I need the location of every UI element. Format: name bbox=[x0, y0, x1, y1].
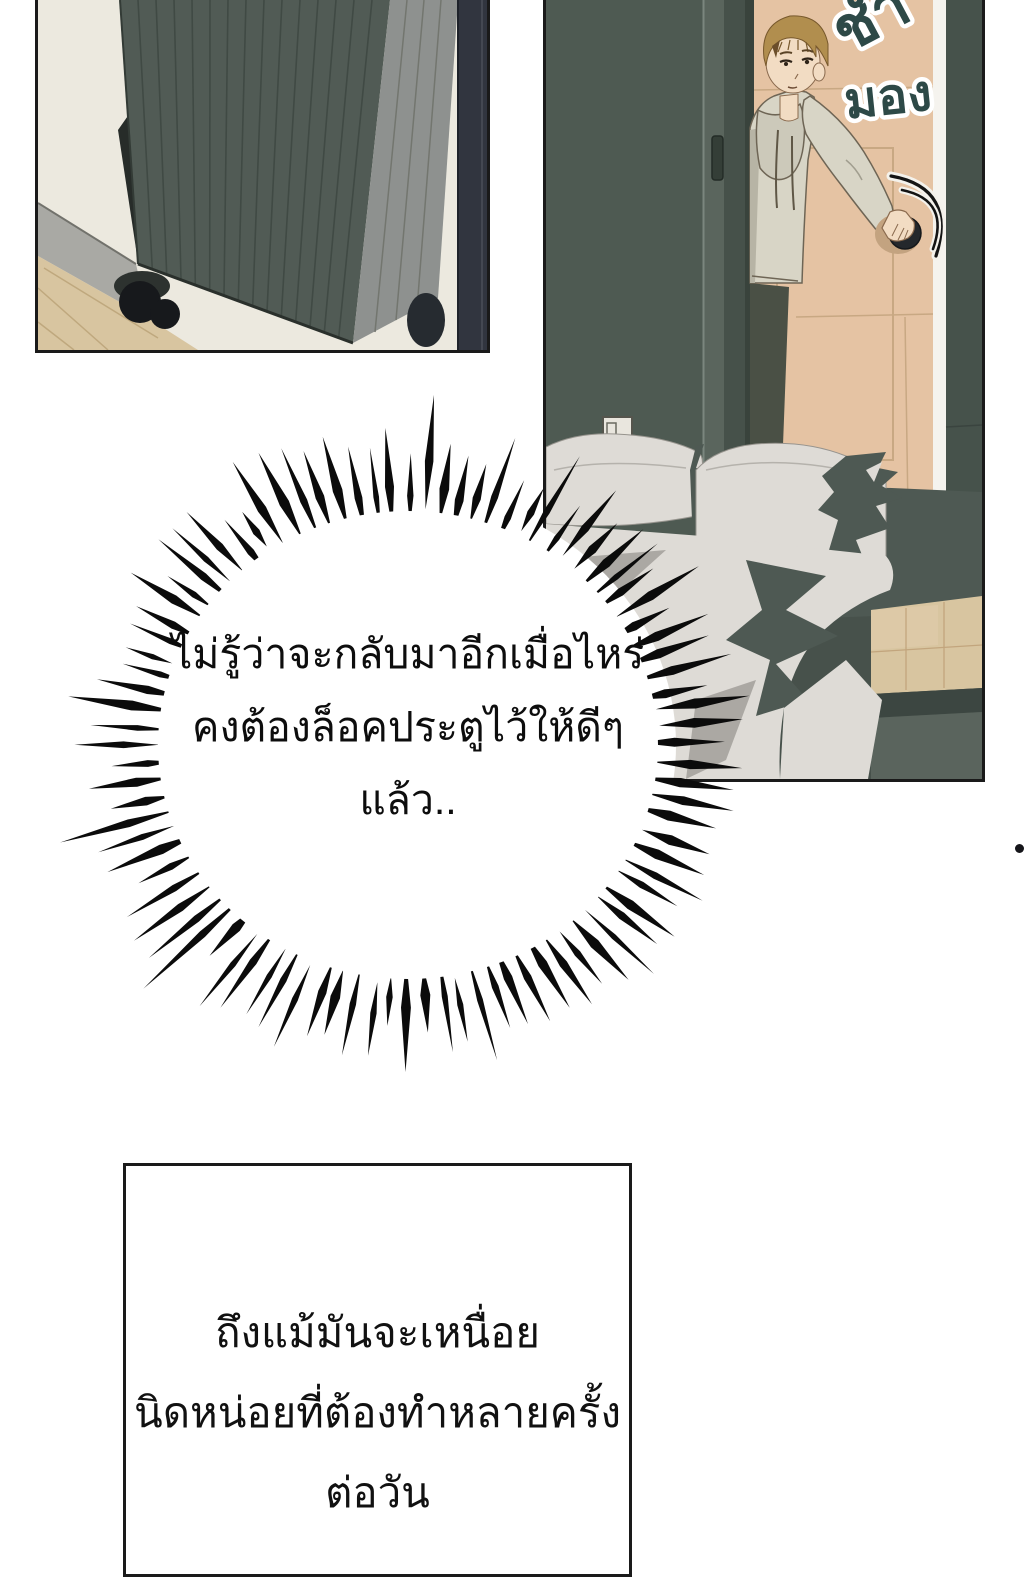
speech-bubble-text: ไม่รู้ว่าจะกลับมาอีกเมื่อไหร่ คงต้องล็อค… bbox=[58, 618, 758, 837]
ink-dot bbox=[1015, 844, 1024, 853]
panel-suitcase bbox=[35, 0, 490, 353]
neck bbox=[780, 94, 798, 121]
sfx-look: มอง bbox=[842, 65, 935, 130]
caption-text: ถึงแม้มันจะเหนื่อย นิดหน่อยที่ต้องทำหลาย… bbox=[126, 1166, 629, 1533]
caption-line: ต่อวัน bbox=[126, 1453, 629, 1533]
suitcase-wheel-right bbox=[407, 293, 445, 347]
suitcase-illustration bbox=[38, 0, 487, 350]
suitcase-wheel-left2 bbox=[150, 299, 180, 329]
comic-page: ชำ มอง ไม่รู้ว่าจะกลับมาอีกเมื่อไหร่ คงต… bbox=[0, 0, 1036, 1580]
hall-dark-strip bbox=[946, 0, 982, 505]
caption-box: ถึงแม้มันจะเหนื่อย นิดหน่อยที่ต้องทำหลาย… bbox=[123, 1163, 632, 1577]
caption-line: ถึงแม้มันจะเหนื่อย bbox=[126, 1293, 629, 1373]
caption-line: นิดหน่อยที่ต้องทำหลายครั้ง bbox=[126, 1373, 629, 1453]
bubble-line: แล้ว.. bbox=[58, 764, 758, 837]
bubble-line: คงต้องล็อคประตูไว้ให้ดีๆ bbox=[58, 691, 758, 764]
speech-bubble-burst: ไม่รู้ว่าจะกลับมาอีกเมื่อไหร่ คงต้องล็อค… bbox=[58, 395, 758, 1095]
bubble-line: ไม่รู้ว่าจะกลับมาอีกเมื่อไหร่ bbox=[58, 618, 758, 691]
door-handle bbox=[712, 136, 723, 180]
ear bbox=[813, 63, 825, 81]
